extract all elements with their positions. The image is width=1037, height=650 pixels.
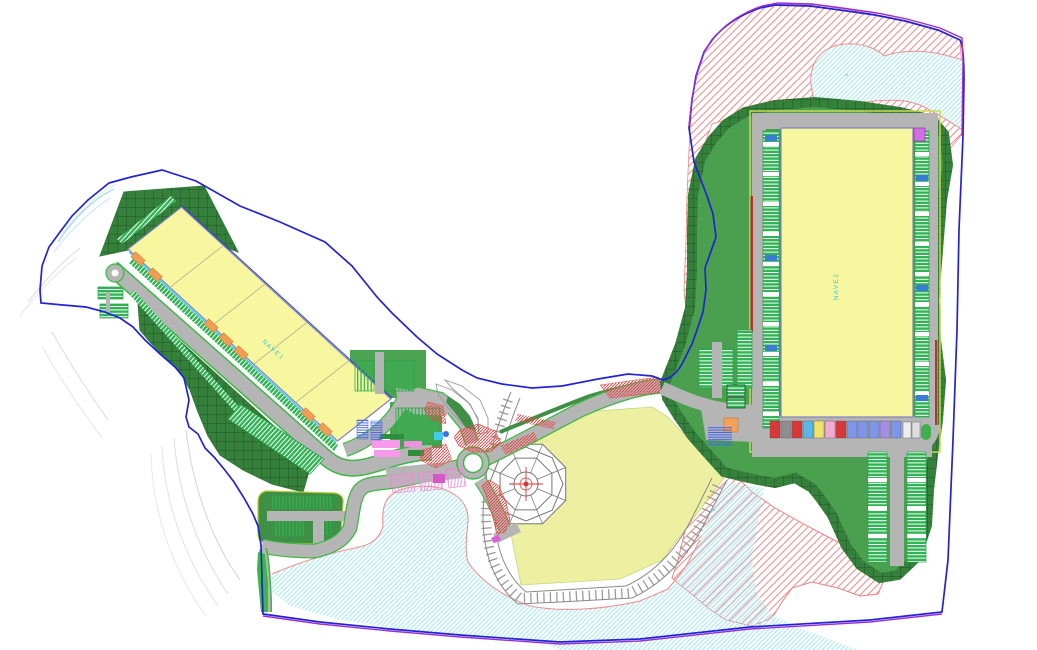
svg-text:N A V E 2: N A V E 2 (834, 274, 840, 300)
